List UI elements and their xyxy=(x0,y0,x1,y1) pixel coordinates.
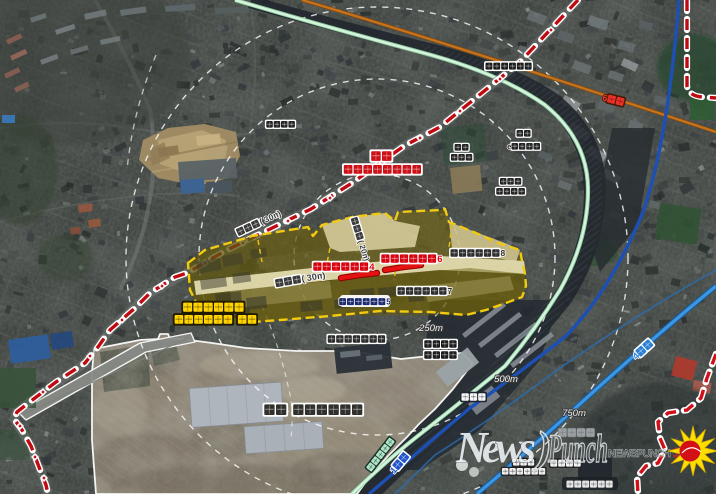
svg-text:News: News xyxy=(455,423,536,472)
svg-text:8: 8 xyxy=(501,248,506,258)
svg-text:6: 6 xyxy=(437,254,442,265)
svg-text:NEWSPUNCH: NEWSPUNCH xyxy=(608,448,671,460)
svg-text:5: 5 xyxy=(386,298,391,307)
svg-text:Punch: Punch xyxy=(547,426,608,471)
svg-text:e: e xyxy=(507,142,511,151)
svg-text:500m: 500m xyxy=(494,374,518,385)
svg-text:7: 7 xyxy=(448,286,453,296)
svg-text:4: 4 xyxy=(369,262,375,273)
svg-text:750m: 750m xyxy=(562,408,586,419)
svg-text:250m: 250m xyxy=(418,323,443,334)
